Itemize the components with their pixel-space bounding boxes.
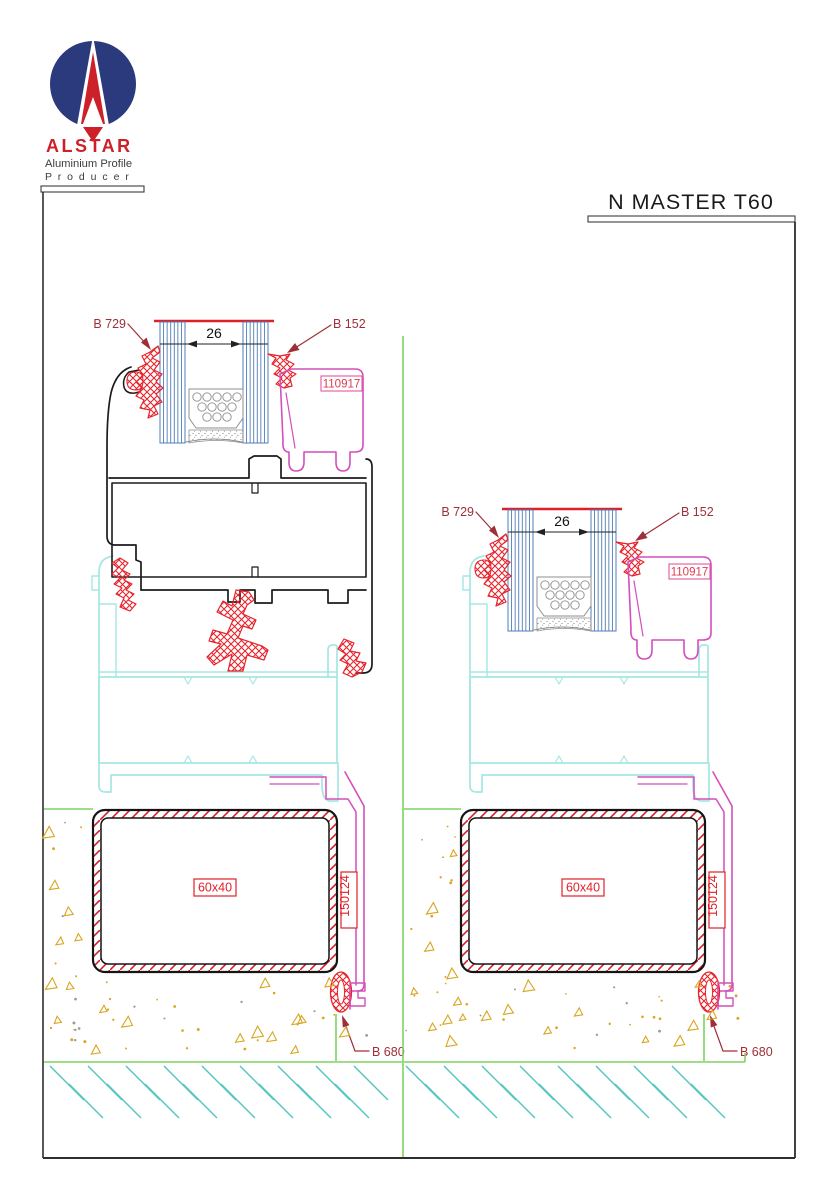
- concrete-triangle: [75, 934, 82, 941]
- soil-hatch-line: [183, 1084, 217, 1118]
- concrete-dot: [273, 992, 276, 995]
- soil-hatch-line: [596, 1066, 630, 1100]
- concrete-triangle: [544, 1027, 551, 1034]
- concrete-triangle: [523, 980, 535, 992]
- glass-pane: [160, 322, 185, 443]
- tube-size-label-text: 60x40: [198, 881, 232, 895]
- concrete-dot: [430, 915, 433, 918]
- concrete-triangle: [236, 1034, 245, 1043]
- concrete-dot: [173, 1005, 176, 1008]
- glazing-dimension-text: 26: [206, 325, 222, 341]
- concrete-dot: [405, 1030, 407, 1032]
- concrete-dot: [626, 1002, 628, 1004]
- drawing-canvas: ALSTAR Aluminium Profile P r o d u c e r…: [0, 0, 829, 1200]
- gasket-right-seal: [338, 639, 366, 677]
- spacer-desiccant: [189, 430, 243, 443]
- gasket-b680-core: [338, 980, 345, 1004]
- sash-notch: [252, 567, 258, 577]
- bead-inner-line: [286, 393, 295, 448]
- concrete-dot: [125, 1048, 127, 1050]
- concrete-dot: [64, 822, 66, 824]
- concrete-dot: [454, 836, 456, 838]
- b152-arrowhead-icon: [287, 343, 300, 353]
- frame-left-wall: [99, 556, 113, 763]
- left-section-drawing: 26110917B 729B 15260x40150124B 680: [92, 317, 405, 1061]
- concrete-triangle: [443, 1015, 452, 1024]
- subframe-label-text: 150124: [338, 875, 352, 917]
- concrete-dot: [74, 998, 77, 1001]
- sash-notch: [252, 483, 258, 493]
- soil-hatch-line: [88, 1066, 122, 1100]
- concrete-dot: [447, 826, 449, 828]
- frame-notch: [184, 677, 192, 684]
- concrete-dot: [73, 1029, 75, 1031]
- concrete-triangle: [66, 982, 74, 990]
- soil-hatch-line: [354, 1066, 388, 1100]
- concrete-triangle: [260, 978, 270, 988]
- gasket-b680-core: [706, 980, 713, 1004]
- concrete-dot: [243, 1048, 246, 1051]
- soil-hatch-line: [672, 1066, 706, 1100]
- concrete-triangle: [291, 1046, 299, 1054]
- b680-bracket: [350, 983, 365, 1006]
- concrete-triangle: [64, 907, 73, 916]
- b680-arrowhead-icon: [342, 1015, 349, 1028]
- concrete-dot: [659, 1017, 662, 1020]
- concrete-dot: [74, 1039, 76, 1041]
- sash-top-edge: [109, 456, 366, 478]
- concrete-dot: [629, 1024, 631, 1026]
- frame-chamber: [470, 677, 708, 763]
- concrete-triangle: [91, 1045, 100, 1054]
- concrete-triangle: [481, 1011, 491, 1021]
- concrete-dot: [186, 1047, 188, 1049]
- concrete-dot: [257, 1039, 259, 1041]
- concrete-dot: [313, 1010, 315, 1012]
- frame-notch: [555, 677, 563, 684]
- concrete-dot: [440, 1024, 442, 1026]
- concrete-dot: [181, 1029, 184, 1032]
- frame-notch: [555, 756, 563, 763]
- soil-hatch-line: [335, 1084, 369, 1118]
- soil-hatch-line: [221, 1084, 255, 1118]
- concrete-dot: [658, 996, 660, 998]
- soil-hatch-line: [501, 1084, 535, 1118]
- concrete-dot: [72, 1021, 75, 1024]
- soil-hatch-line: [69, 1084, 103, 1118]
- concrete-dot: [440, 876, 442, 878]
- concrete-dot: [609, 1023, 611, 1025]
- frame-chamber: [99, 677, 337, 763]
- soil-hatch-line: [615, 1084, 649, 1118]
- right-section-drawing: 26110917B 729B 15260x40150124B 680: [441, 505, 772, 1061]
- concrete-triangle: [54, 1016, 61, 1023]
- concrete-dot: [450, 879, 452, 881]
- concrete-triangle: [411, 988, 418, 995]
- gasket-b152: [616, 542, 644, 576]
- concrete-triangle: [459, 1014, 465, 1020]
- soil-hatch-line: [202, 1066, 236, 1100]
- soil-hatch-line: [425, 1084, 459, 1118]
- b680-label-text: B 680: [372, 1045, 405, 1059]
- bead-inner-line: [634, 581, 643, 636]
- concrete-dot: [83, 1040, 86, 1043]
- soil-hatch-line: [145, 1084, 179, 1118]
- frame-bottom-flange: [470, 763, 709, 801]
- concrete-dot: [502, 1018, 505, 1021]
- concrete-dot: [62, 915, 64, 917]
- concrete-triangle: [45, 978, 57, 990]
- soil-hatch-line: [240, 1066, 274, 1100]
- concrete-triangle: [267, 1032, 277, 1042]
- concrete-dot: [107, 1008, 109, 1010]
- soil-hatch-line: [278, 1066, 312, 1100]
- concrete-dot: [156, 999, 158, 1001]
- gasket-left-seal: [112, 558, 136, 611]
- soil-hatch-line: [444, 1066, 478, 1100]
- concrete-dot: [109, 998, 111, 1000]
- soil-hatch-line: [653, 1084, 687, 1118]
- soil-hatch-line: [482, 1066, 516, 1100]
- concrete-dot: [163, 1018, 165, 1020]
- dimension-arrow-right-icon: [231, 341, 241, 348]
- concrete-dot: [55, 962, 57, 964]
- page-title: N MASTER T60: [608, 190, 774, 214]
- concrete-dot: [133, 1005, 135, 1007]
- sash-chamber: [112, 483, 366, 577]
- concrete-dot: [613, 986, 615, 988]
- concrete-triangle: [688, 1020, 698, 1030]
- logo-underline-bar: [41, 186, 144, 192]
- soil-hatch-line: [406, 1066, 440, 1100]
- soil-hatch-line: [164, 1066, 198, 1100]
- frame-left-shelf: [470, 604, 487, 677]
- concrete-dot: [729, 985, 732, 988]
- concrete-dot: [444, 976, 446, 978]
- concrete-dot: [641, 1016, 644, 1019]
- concrete-dot: [573, 1047, 575, 1049]
- concrete-dot: [514, 988, 516, 990]
- soil-hatch-line: [50, 1066, 84, 1100]
- soil-hatch-line: [463, 1084, 497, 1118]
- frame-notch: [620, 756, 628, 763]
- concrete-triangle: [426, 903, 437, 914]
- title-underline-bar: [588, 216, 795, 222]
- concrete-dot: [653, 1016, 656, 1019]
- logo: ALSTAR Aluminium Profile P r o d u c e r: [45, 36, 136, 183]
- concrete-dot: [78, 1027, 81, 1030]
- concrete-dot: [661, 1000, 663, 1002]
- concrete-triangle: [446, 1035, 457, 1046]
- concrete-triangle: [252, 1026, 264, 1038]
- sash-right-wall: [356, 459, 372, 673]
- concrete-dot: [565, 993, 567, 995]
- soil-hatch-line: [316, 1066, 350, 1100]
- glazing-assembly: 26110917B 729B 152: [441, 505, 713, 659]
- b152-label-text: B 152: [333, 317, 366, 331]
- concrete-dot: [445, 983, 447, 985]
- soil-hatch-line: [577, 1084, 611, 1118]
- frame-notch: [249, 756, 257, 763]
- concrete-dot: [555, 1026, 558, 1029]
- b152-leader: [292, 325, 331, 350]
- concrete-dot: [322, 1017, 325, 1020]
- gasket-b729-inner: [475, 560, 491, 578]
- soil-hatch-line: [259, 1084, 293, 1118]
- soil-hatch-line: [126, 1066, 160, 1100]
- concrete-dot: [735, 994, 738, 997]
- glass-pane: [591, 510, 616, 631]
- concrete-dot: [480, 1015, 482, 1017]
- logo-tagline-2: P r o d u c e r: [45, 171, 130, 183]
- concrete-dot: [296, 1023, 298, 1025]
- b729-label-text: B 729: [93, 317, 126, 331]
- b152-leader: [640, 513, 679, 538]
- gasket-b152: [268, 354, 296, 388]
- concrete-dot: [413, 995, 415, 997]
- concrete-triangle: [429, 1023, 437, 1031]
- dimension-arrow-left-icon: [187, 341, 197, 348]
- concrete-dot: [52, 847, 55, 850]
- soil-hatch-line: [520, 1066, 554, 1100]
- frame-left-clip: [92, 576, 99, 590]
- glass-pane: [508, 510, 533, 631]
- concrete-triangle: [43, 826, 55, 838]
- frame-left-wall: [470, 556, 484, 763]
- concrete-dot: [596, 1034, 598, 1036]
- concrete-triangle: [122, 1016, 133, 1027]
- concrete-dot: [736, 1017, 739, 1020]
- bead-label-text: 110917: [671, 567, 709, 579]
- b152-label-text: B 152: [681, 505, 714, 519]
- frame-left-clip: [463, 576, 470, 590]
- gasket-b729-inner: [127, 372, 143, 390]
- ground-and-soil: [43, 336, 745, 1157]
- frame-notch: [620, 677, 628, 684]
- b729-label-text: B 729: [441, 505, 474, 519]
- concrete-dot: [442, 856, 444, 858]
- concrete-dot: [106, 981, 108, 983]
- concrete-triangle: [674, 1036, 685, 1047]
- concrete-dot: [50, 1027, 52, 1029]
- subframe-label-text: 150124: [706, 875, 720, 917]
- glazing-assembly: 26110917B 729B 152: [93, 317, 365, 471]
- frame-notch: [249, 677, 257, 684]
- glazing-dimension-text: 26: [554, 513, 570, 529]
- soil-hatch-line: [634, 1066, 668, 1100]
- bead-label-text: 110917: [323, 379, 361, 391]
- b152-arrowhead-icon: [635, 531, 648, 541]
- concrete-dot: [197, 1028, 200, 1031]
- spacer-desiccant: [537, 618, 591, 631]
- soil-hatch-line: [107, 1084, 141, 1118]
- concrete-dot: [75, 975, 77, 977]
- logo-tagline-1: Aluminium Profile: [45, 158, 132, 170]
- concrete-dot: [449, 881, 452, 884]
- concrete-dot: [112, 1019, 114, 1021]
- frame-notch: [184, 756, 192, 763]
- soil-hatch-line: [297, 1084, 331, 1118]
- drawing-sheet: ALSTAR Aluminium Profile P r o d u c e r…: [0, 0, 829, 1200]
- concrete-triangle: [503, 1004, 513, 1014]
- concrete-triangle: [56, 937, 64, 945]
- concrete-dot: [333, 1014, 335, 1016]
- concrete-triangle: [642, 1036, 648, 1042]
- soil-hatch-line: [691, 1084, 725, 1118]
- concrete-dot: [80, 826, 82, 828]
- concrete-triangle: [447, 968, 458, 979]
- concrete-triangle: [50, 880, 59, 889]
- concrete-triangle: [574, 1008, 582, 1016]
- concrete-dot: [658, 1030, 661, 1033]
- concrete-triangle: [339, 1027, 349, 1037]
- dimension-arrow-left-icon: [535, 529, 545, 536]
- concrete-dot: [465, 1003, 468, 1006]
- soil-hatch-line: [539, 1084, 573, 1118]
- concrete-dot: [70, 1038, 73, 1041]
- concrete-triangle: [453, 997, 461, 1005]
- concrete-triangle: [425, 942, 434, 951]
- concrete-triangle: [100, 1005, 107, 1012]
- concrete-dot: [421, 839, 423, 841]
- tube-size-label-text: 60x40: [566, 881, 600, 895]
- logo-brand-text: ALSTAR: [46, 136, 133, 156]
- frame-bottom-flange: [99, 763, 338, 801]
- tube-assembly: 60x40150124B 680: [93, 772, 405, 1061]
- glass-pane: [243, 322, 268, 443]
- concrete-dot: [365, 1034, 368, 1037]
- concrete-dot: [436, 991, 438, 993]
- concrete-dot: [240, 1001, 242, 1003]
- frame-left-shelf: [99, 604, 116, 677]
- soil-hatch-line: [558, 1066, 592, 1100]
- dimension-arrow-right-icon: [579, 529, 589, 536]
- tube-assembly: 60x40150124B 680: [461, 772, 773, 1061]
- concrete-dot: [410, 928, 412, 930]
- concrete-triangle: [450, 850, 457, 857]
